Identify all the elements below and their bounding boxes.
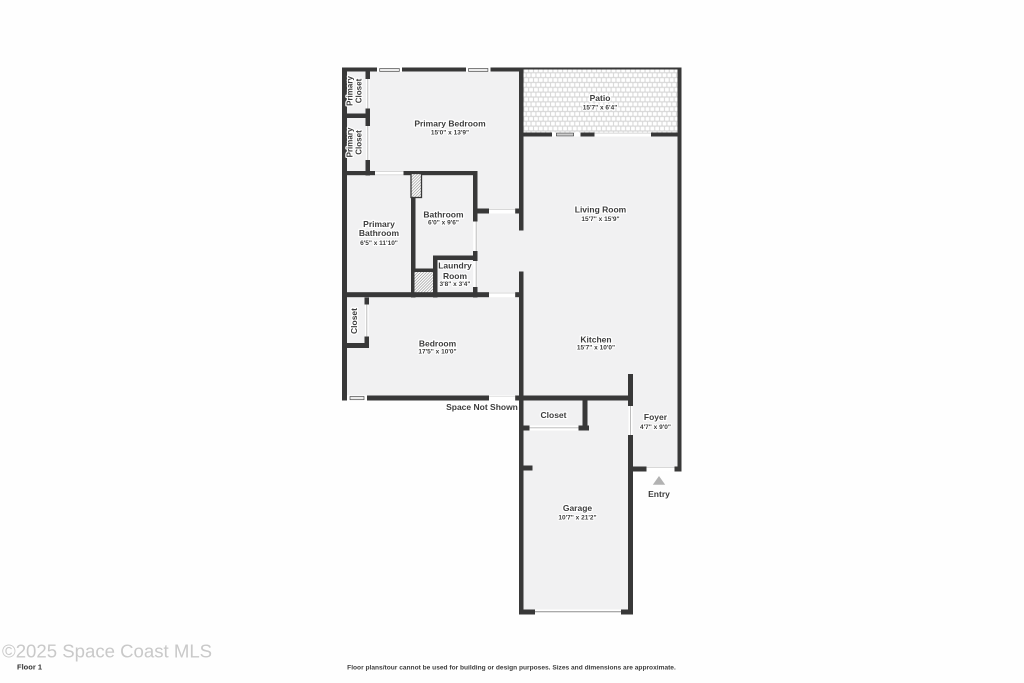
svg-text:Laundry: Laundry <box>438 260 472 270</box>
svg-text:©2025 Space Coast MLS: ©2025 Space Coast MLS <box>2 640 212 661</box>
svg-text:6'5" x 11'10": 6'5" x 11'10" <box>360 240 398 247</box>
svg-text:17'5" x 10'0": 17'5" x 10'0" <box>418 349 456 356</box>
svg-text:Closet: Closet <box>541 410 567 420</box>
svg-text:Foyer: Foyer <box>644 412 668 422</box>
svg-text:Closet: Closet <box>355 130 364 155</box>
svg-text:Floor plans/tour cannot be use: Floor plans/tour cannot be used for buil… <box>347 665 676 672</box>
svg-text:Closet: Closet <box>349 308 359 334</box>
svg-text:Space Not Shown: Space Not Shown <box>446 402 518 412</box>
svg-text:15'7" x 6'4": 15'7" x 6'4" <box>583 104 618 111</box>
svg-text:15'7" x 15'9": 15'7" x 15'9" <box>581 216 619 223</box>
svg-text:Primary: Primary <box>346 76 355 106</box>
svg-text:15'7" x 10'0": 15'7" x 10'0" <box>577 345 615 352</box>
svg-text:Bathroom: Bathroom <box>359 228 400 238</box>
svg-text:Patio: Patio <box>590 93 611 103</box>
svg-text:3'8" x 3'4": 3'8" x 3'4" <box>440 281 471 288</box>
svg-text:Living Room: Living Room <box>575 205 627 215</box>
svg-text:10'7" x 21'2": 10'7" x 21'2" <box>558 515 596 522</box>
svg-text:Primary Bedroom: Primary Bedroom <box>414 118 486 128</box>
svg-text:Garage: Garage <box>563 503 593 513</box>
svg-text:Floor 1: Floor 1 <box>17 662 42 671</box>
svg-text:6'0" x 9'6": 6'0" x 9'6" <box>428 219 459 226</box>
svg-text:Kitchen: Kitchen <box>580 334 611 344</box>
svg-text:Bedroom: Bedroom <box>419 339 457 349</box>
svg-text:Primary: Primary <box>346 127 355 157</box>
svg-text:Room: Room <box>443 271 468 281</box>
svg-text:Closet: Closet <box>355 78 364 103</box>
svg-text:Bathroom: Bathroom <box>423 210 464 220</box>
svg-text:Entry: Entry <box>648 489 670 499</box>
svg-text:4'7" x 9'0": 4'7" x 9'0" <box>640 424 671 431</box>
svg-text:15'0" x 13'9": 15'0" x 13'9" <box>431 129 469 136</box>
